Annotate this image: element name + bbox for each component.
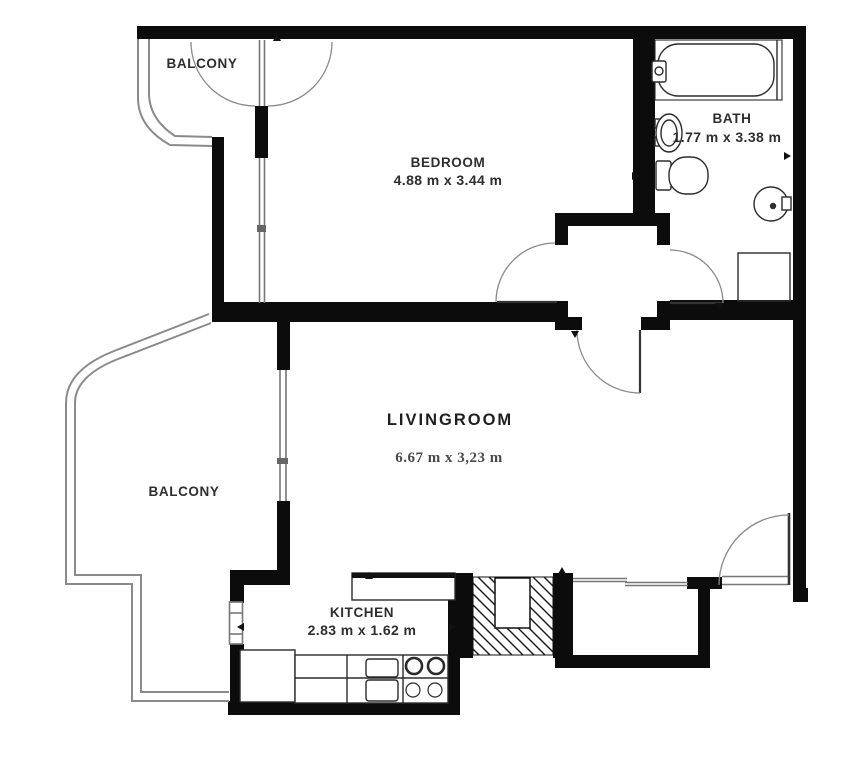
wall-hall-bottom-a — [555, 317, 582, 330]
floorplan: BALCONY BEDROOM 4.88 m x 3.44 m BATH 1.7… — [0, 0, 848, 762]
kitchen-fixtures — [240, 573, 455, 703]
wall-top — [137, 26, 806, 39]
railing-left-balcony-outer — [66, 314, 229, 701]
shower-tray — [738, 253, 790, 301]
room-dims-bath: 1.77 m x 3.38 m — [673, 129, 782, 145]
wall-bedroom-bottom — [212, 302, 555, 322]
wall-shaft-left — [453, 573, 473, 658]
dimension-arrows — [237, 33, 791, 631]
toilet — [656, 157, 708, 194]
room-dims-kitchen: 2.83 m x 1.62 m — [308, 622, 417, 638]
room-label-balcony-top: BALCONY — [167, 56, 238, 71]
window-kitchen-balcony — [229, 602, 243, 644]
railing-left-balcony-inner — [75, 323, 229, 692]
shaft-duct — [495, 578, 530, 628]
room-label-kitchen: KITCHEN — [330, 605, 394, 620]
windows — [229, 158, 788, 644]
washing-machine — [754, 187, 791, 221]
railing-top-balcony-inner — [149, 39, 212, 137]
window-bedroom-balcony — [257, 158, 266, 303]
wall-balcony-door-block — [255, 106, 268, 158]
balcony-railings — [66, 39, 229, 701]
door-swing-arc — [719, 515, 789, 585]
door-swing-arc — [496, 243, 555, 302]
window-smallroom — [573, 579, 688, 586]
door-swing-arc — [191, 42, 255, 106]
wall-hall-top — [555, 213, 670, 226]
bath-fixtures — [652, 40, 791, 301]
service-shaft — [473, 577, 553, 655]
bathtub — [652, 40, 782, 100]
kitchen-sink — [366, 659, 398, 701]
door-entrance — [719, 513, 789, 585]
wall-entrance-block — [687, 577, 722, 589]
room-label-bath: BATH — [713, 111, 752, 126]
door-swing-arc — [268, 42, 332, 106]
arrow-marker — [558, 567, 566, 574]
room-label-bedroom: BEDROOM — [411, 155, 486, 170]
wall-kitchen-left-a — [230, 575, 244, 603]
door-hall-bedroom — [496, 243, 557, 302]
wall-smallroom-right — [698, 585, 710, 668]
kitchen-tall-cabinet — [240, 650, 295, 702]
wall-smallroom-bottom — [555, 655, 710, 668]
room-dims-livingroom: 6.67 m x 3,23 m — [395, 450, 503, 467]
door-hall-bath — [670, 250, 723, 303]
entrance-threshold — [722, 577, 788, 585]
wall-right-foot — [793, 588, 808, 602]
room-dims-bedroom: 4.88 m x 3.44 m — [394, 172, 503, 188]
window-livingroom-balcony — [277, 370, 288, 501]
door-swing-arc — [670, 250, 723, 303]
wall-left — [212, 137, 224, 322]
door-swing-arc — [577, 330, 640, 393]
wall-hall-left-a — [555, 213, 568, 245]
arrow-marker — [784, 152, 791, 160]
door-hall-livingroom — [577, 330, 640, 393]
door-bedroom-balcony — [191, 40, 332, 106]
wall-livingroom-left-a — [277, 322, 290, 370]
wall-hall-bottom-b — [641, 317, 670, 330]
wall-right — [793, 26, 806, 602]
room-label-balcony-left: BALCONY — [149, 484, 220, 499]
room-label-livingroom: LIVINGROOM — [387, 411, 513, 430]
wall-hall-right-a — [657, 213, 670, 245]
